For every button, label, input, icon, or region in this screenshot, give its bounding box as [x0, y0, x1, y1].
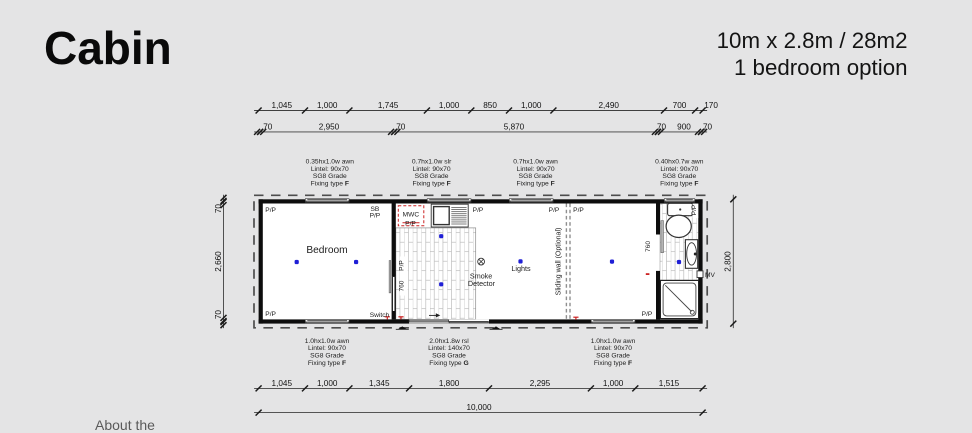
- svg-text:P/P: P/P: [691, 204, 698, 215]
- svg-text:P/P: P/P: [265, 207, 276, 214]
- svg-text:2,660: 2,660: [214, 251, 223, 272]
- svg-text:Fixing type F: Fixing type F: [660, 181, 698, 188]
- svg-text:Sliding wall (Optional): Sliding wall (Optional): [556, 228, 563, 296]
- svg-text:Lintel: 90x70: Lintel: 90x70: [660, 166, 698, 173]
- svg-text:1.0hx1.0w awn: 1.0hx1.0w awn: [591, 338, 636, 345]
- svg-text:SG8 Grade: SG8 Grade: [310, 353, 344, 360]
- svg-text:1,800: 1,800: [439, 379, 460, 388]
- svg-text:SG8 Grade: SG8 Grade: [313, 173, 347, 180]
- svg-text:70: 70: [657, 122, 667, 131]
- svg-text:1.0hx1.0w awn: 1.0hx1.0w awn: [305, 338, 350, 345]
- svg-text:Lintel: 90x70: Lintel: 90x70: [413, 166, 451, 173]
- svg-text:900: 900: [677, 122, 691, 131]
- svg-text:70: 70: [396, 122, 406, 131]
- svg-text:70: 70: [703, 122, 713, 131]
- svg-text:1,045: 1,045: [272, 379, 293, 388]
- svg-text:1,000: 1,000: [439, 101, 460, 110]
- svg-text:P/P: P/P: [573, 207, 584, 214]
- svg-text:Fixing type F: Fixing type F: [516, 181, 554, 188]
- svg-text:SG8 Grade: SG8 Grade: [662, 173, 696, 180]
- svg-text:1,000: 1,000: [603, 379, 624, 388]
- svg-text:Fixing type G: Fixing type G: [429, 360, 468, 367]
- svg-text:Lights: Lights: [511, 264, 531, 273]
- svg-text:P/P: P/P: [642, 311, 653, 318]
- svg-text:MWC: MWC: [403, 212, 420, 219]
- svg-text:760: 760: [399, 280, 406, 291]
- svg-text:Fixing type F: Fixing type F: [308, 360, 346, 367]
- svg-text:Lintel: 90x70: Lintel: 90x70: [517, 166, 555, 173]
- svg-text:1,515: 1,515: [659, 379, 680, 388]
- svg-text:10,000: 10,000: [466, 403, 491, 412]
- svg-text:700: 700: [673, 101, 687, 110]
- svg-text:Lintel: 90x70: Lintel: 90x70: [311, 166, 349, 173]
- svg-text:1,000: 1,000: [317, 379, 338, 388]
- svg-text:P/P: P/P: [399, 260, 406, 271]
- svg-text:P/P: P/P: [549, 207, 560, 214]
- svg-text:0.35hx1.0w awn: 0.35hx1.0w awn: [306, 159, 355, 166]
- svg-text:70: 70: [263, 122, 273, 131]
- svg-text:2,295: 2,295: [530, 379, 551, 388]
- svg-text:1,345: 1,345: [369, 379, 390, 388]
- svg-text:850: 850: [483, 101, 497, 110]
- svg-text:760: 760: [645, 241, 652, 252]
- svg-text:P/P: P/P: [473, 207, 484, 214]
- svg-text:Fixing type F: Fixing type F: [311, 181, 349, 188]
- svg-text:MV: MV: [705, 272, 715, 279]
- svg-text:P/P: P/P: [405, 220, 416, 227]
- svg-text:SG8 Grade: SG8 Grade: [432, 353, 466, 360]
- svg-text:Detector: Detector: [468, 279, 496, 288]
- svg-text:Lintel: 90x70: Lintel: 90x70: [594, 345, 632, 352]
- svg-text:Fixing type F: Fixing type F: [594, 360, 632, 367]
- svg-text:5,870: 5,870: [504, 122, 525, 131]
- svg-text:70: 70: [214, 204, 223, 214]
- svg-text:SG8 Grade: SG8 Grade: [519, 173, 553, 180]
- svg-text:SG8 Grade: SG8 Grade: [596, 353, 630, 360]
- svg-text:Fixing type F: Fixing type F: [412, 181, 450, 188]
- svg-text:2.0hx1.8w rsl: 2.0hx1.8w rsl: [429, 338, 469, 345]
- svg-text:SG8 Grade: SG8 Grade: [415, 173, 449, 180]
- svg-text:0.7hx1.0w awn: 0.7hx1.0w awn: [513, 159, 558, 166]
- svg-text:70: 70: [214, 310, 223, 320]
- svg-text:1,045: 1,045: [272, 101, 293, 110]
- svg-text:0.7hx1.0w slr: 0.7hx1.0w slr: [412, 159, 452, 166]
- svg-text:Lintel: 90x70: Lintel: 90x70: [308, 345, 346, 352]
- svg-text:Lintel: 140x70: Lintel: 140x70: [428, 345, 470, 352]
- svg-text:Bedroom: Bedroom: [306, 245, 347, 256]
- svg-text:1,745: 1,745: [378, 101, 399, 110]
- svg-text:2,800: 2,800: [724, 251, 733, 272]
- svg-text:P/P: P/P: [265, 311, 276, 318]
- svg-text:1,000: 1,000: [317, 101, 338, 110]
- svg-text:Switch: Switch: [370, 312, 390, 319]
- svg-text:0.40hx0.7w awn: 0.40hx0.7w awn: [655, 159, 704, 166]
- svg-text:2,950: 2,950: [319, 122, 340, 131]
- svg-text:2,490: 2,490: [598, 101, 619, 110]
- svg-text:P/P: P/P: [370, 212, 381, 219]
- svg-text:1,000: 1,000: [521, 101, 542, 110]
- svg-text:170: 170: [704, 101, 718, 110]
